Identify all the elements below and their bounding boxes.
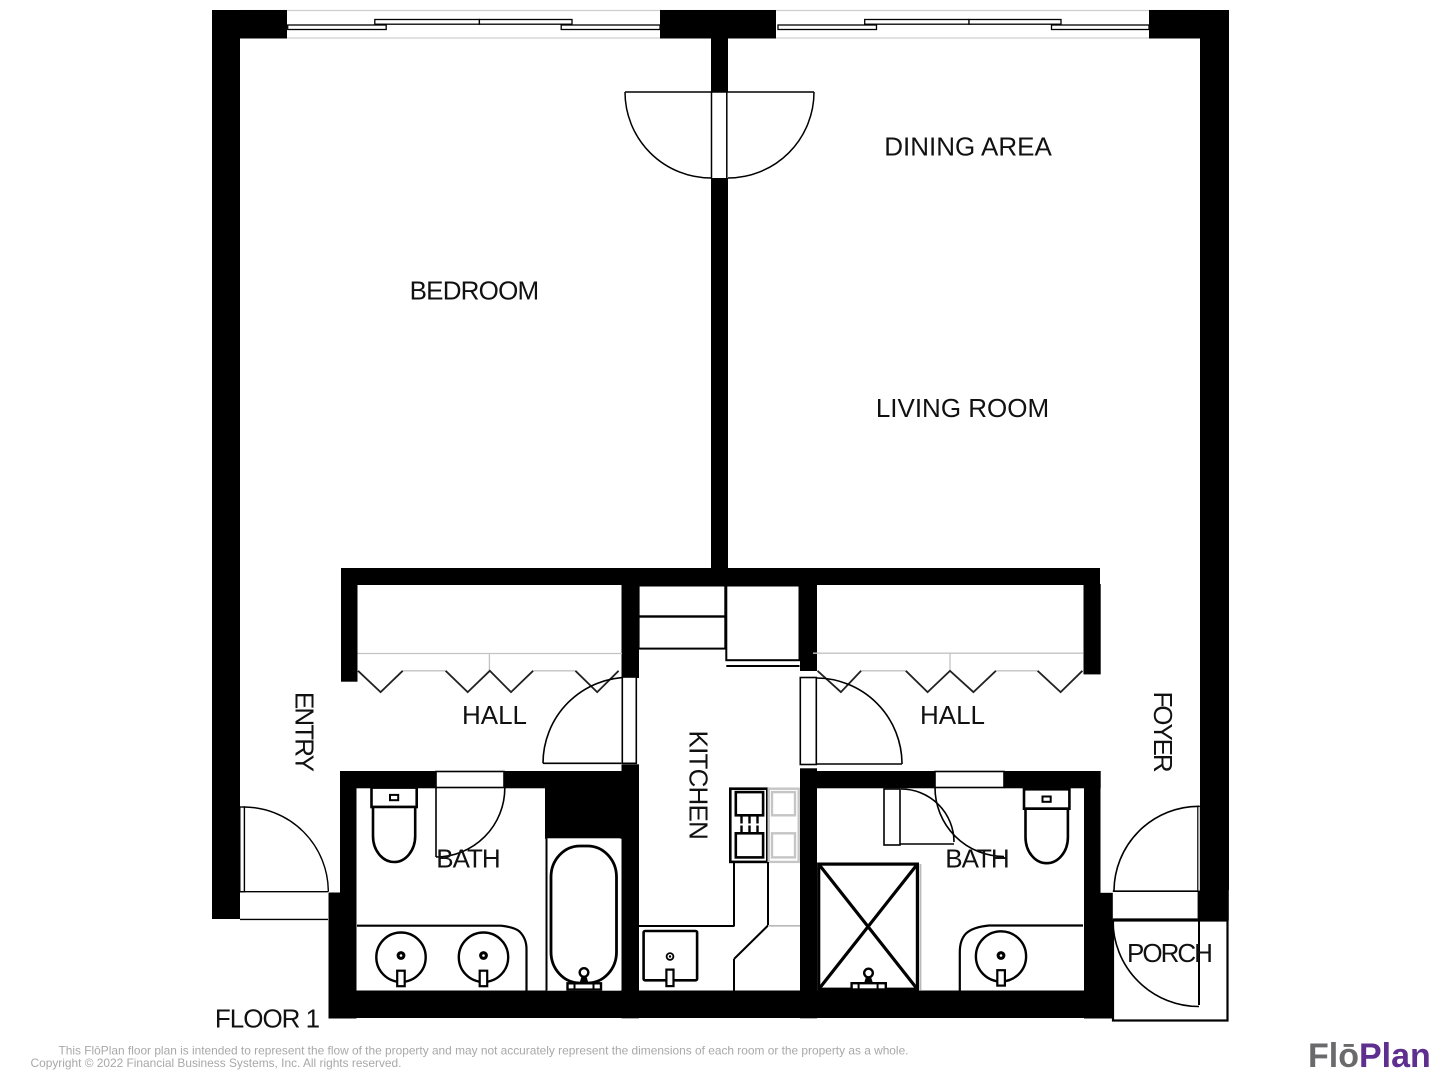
svg-text:HALL: HALL <box>462 700 527 730</box>
svg-text:HALL: HALL <box>920 700 985 730</box>
svg-text:PORCH: PORCH <box>1127 938 1211 968</box>
svg-text:FLOOR 1: FLOOR 1 <box>215 1004 320 1034</box>
svg-text:FlōPlan: FlōPlan <box>1308 1037 1431 1075</box>
svg-text:ENTRY: ENTRY <box>290 692 320 772</box>
svg-text:BATH: BATH <box>436 844 499 874</box>
svg-text:BEDROOM: BEDROOM <box>410 276 539 306</box>
svg-text:DINING AREA: DINING AREA <box>884 132 1052 162</box>
svg-text:LIVING ROOM: LIVING ROOM <box>876 393 1049 423</box>
svg-text:Copyright © 2022 Financial Bus: Copyright © 2022 Financial Business Syst… <box>31 1056 402 1070</box>
svg-text:FOYER: FOYER <box>1148 691 1178 771</box>
svg-text:BATH: BATH <box>945 844 1008 874</box>
svg-text:KITCHEN: KITCHEN <box>683 731 713 840</box>
